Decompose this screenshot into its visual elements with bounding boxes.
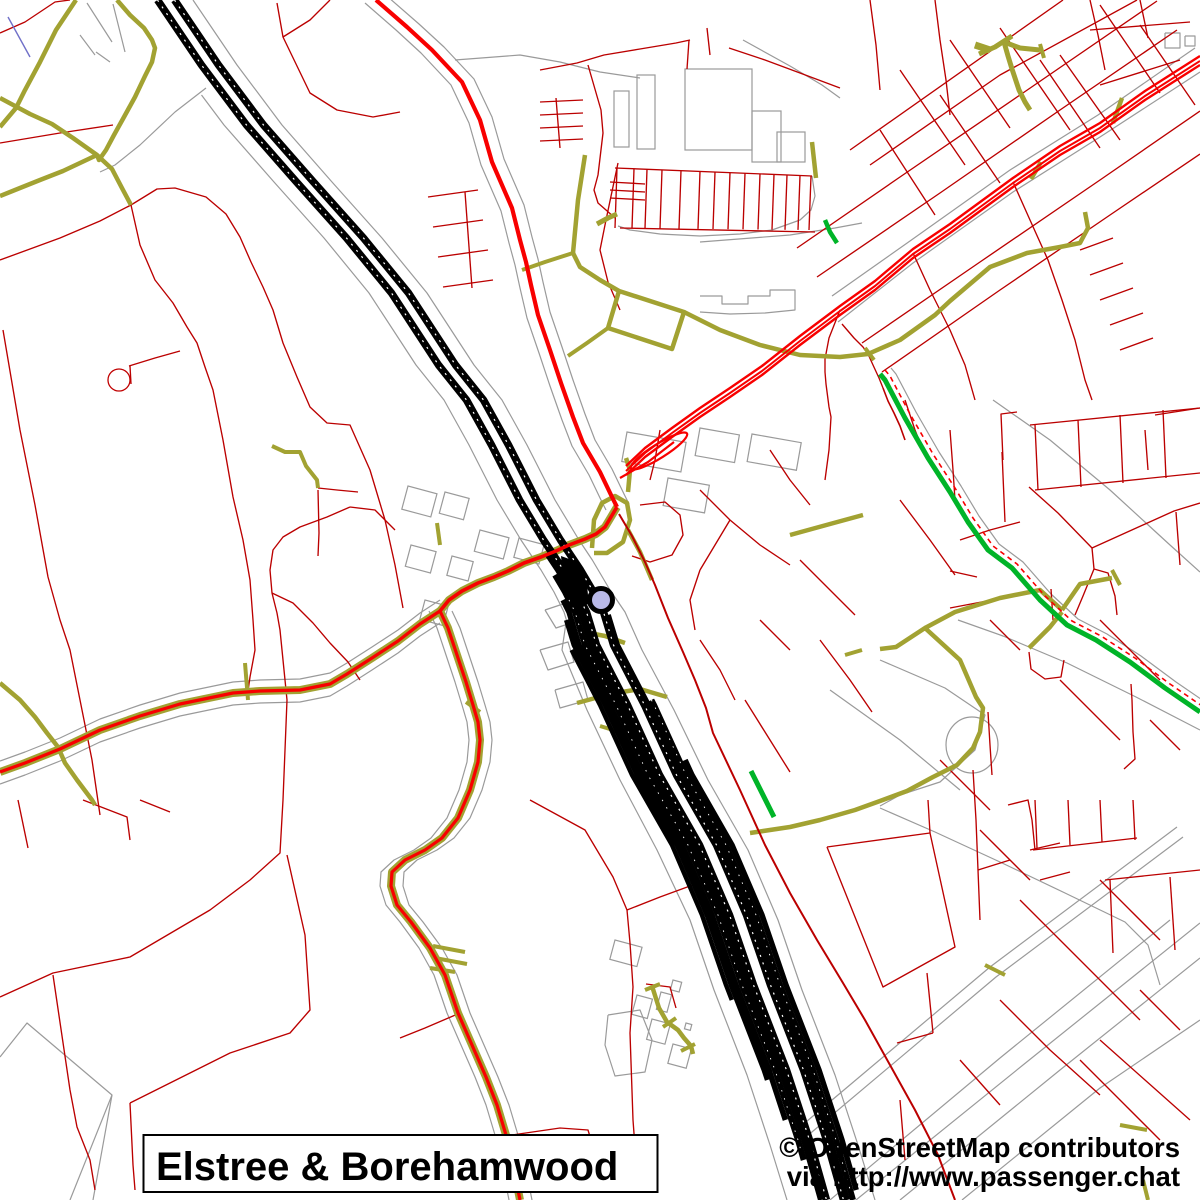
svg-text:via http://www.passenger.chat: via http://www.passenger.chat bbox=[787, 1161, 1180, 1192]
svg-text:Elstree & Borehamwood: Elstree & Borehamwood bbox=[156, 1145, 618, 1189]
svg-text:© OpenStreetMap contributors: © OpenStreetMap contributors bbox=[779, 1132, 1180, 1163]
